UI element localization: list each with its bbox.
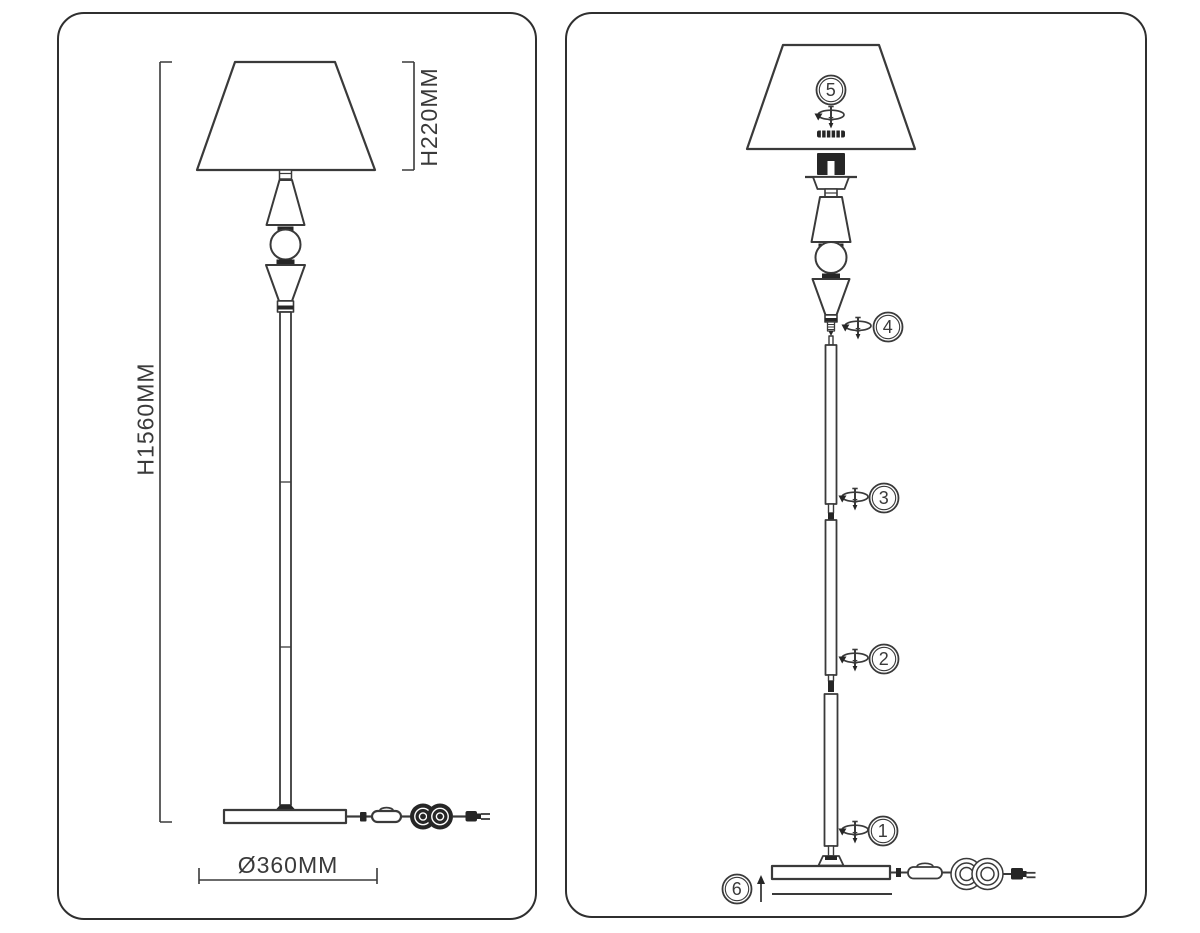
lower-cone-ornament xyxy=(813,279,850,315)
assembly-panel: 5 xyxy=(565,12,1147,918)
power-cord xyxy=(346,804,490,830)
step-1-badge: 1 xyxy=(869,817,898,846)
lampshade xyxy=(197,62,375,170)
threaded-stub xyxy=(825,315,837,336)
step-6-badge: 6 xyxy=(723,875,752,904)
step-3-badge: 3 xyxy=(870,484,899,513)
step-2-badge: 2 xyxy=(870,645,899,674)
upper-cone-ornament xyxy=(267,180,305,225)
lamp-base xyxy=(772,866,890,879)
ball-ornament xyxy=(271,230,301,260)
shade-ring-washer-icon xyxy=(817,131,845,138)
plug-icon xyxy=(466,811,491,822)
dimensions-panel: H1560MM H220MM Ø360MM xyxy=(57,12,537,920)
ball-ornament xyxy=(816,242,847,273)
pole-segment-top xyxy=(826,345,837,504)
lamp-socket xyxy=(805,153,857,197)
pole-segment-bottom xyxy=(825,694,838,846)
pole-stub xyxy=(829,846,834,856)
lamp-base xyxy=(224,810,346,823)
floor-lamp xyxy=(197,62,375,823)
step-4-badge: 4 xyxy=(874,313,903,342)
step-2-number: 2 xyxy=(879,649,890,669)
upper-cone-ornament xyxy=(812,197,851,242)
shade-neck xyxy=(280,170,292,179)
plug-icon xyxy=(1011,868,1036,880)
pole-collar xyxy=(278,301,294,312)
screw-rotation-icon xyxy=(842,318,872,340)
instruction-sheet: H1560MM H220MM Ø360MM xyxy=(0,0,1200,933)
total-height-dimension-label: H1560MM xyxy=(134,349,158,490)
step-4-number: 4 xyxy=(883,317,894,337)
pole-joint xyxy=(828,504,834,520)
coiled-cord-icon xyxy=(410,804,453,830)
floor-lamp-dimension-drawing xyxy=(59,14,535,918)
total-height-dimension-line xyxy=(160,62,172,822)
lower-cone-ornament xyxy=(266,265,305,301)
inline-switch xyxy=(372,808,401,822)
screw-rotation-icon xyxy=(839,650,869,672)
inline-switch xyxy=(908,863,942,878)
step-6-number: 6 xyxy=(732,879,743,899)
pole-segment-middle xyxy=(826,520,837,675)
arrow-up-icon xyxy=(757,875,765,902)
pole-foot xyxy=(819,856,844,866)
cord-bushing xyxy=(896,868,901,877)
step-3-number: 3 xyxy=(879,488,890,508)
shade-height-dimension-label: H220MM xyxy=(417,57,441,177)
screw-rotation-icon xyxy=(839,489,869,511)
pole xyxy=(280,312,291,805)
shade-height-dimension-line xyxy=(402,62,414,170)
coiled-cord-icon xyxy=(951,859,1003,890)
base-diameter-dimension-label: Ø360MM xyxy=(218,853,358,877)
step-5-number: 5 xyxy=(826,80,837,100)
floor-lamp-assembly-drawing: 5 xyxy=(567,14,1145,916)
pole-stub xyxy=(829,336,833,345)
step-1-number: 1 xyxy=(878,821,889,841)
screw-rotation-icon xyxy=(839,822,869,844)
pole-joint xyxy=(828,675,834,692)
cord-bushing xyxy=(360,812,367,822)
power-cord xyxy=(890,859,1036,890)
